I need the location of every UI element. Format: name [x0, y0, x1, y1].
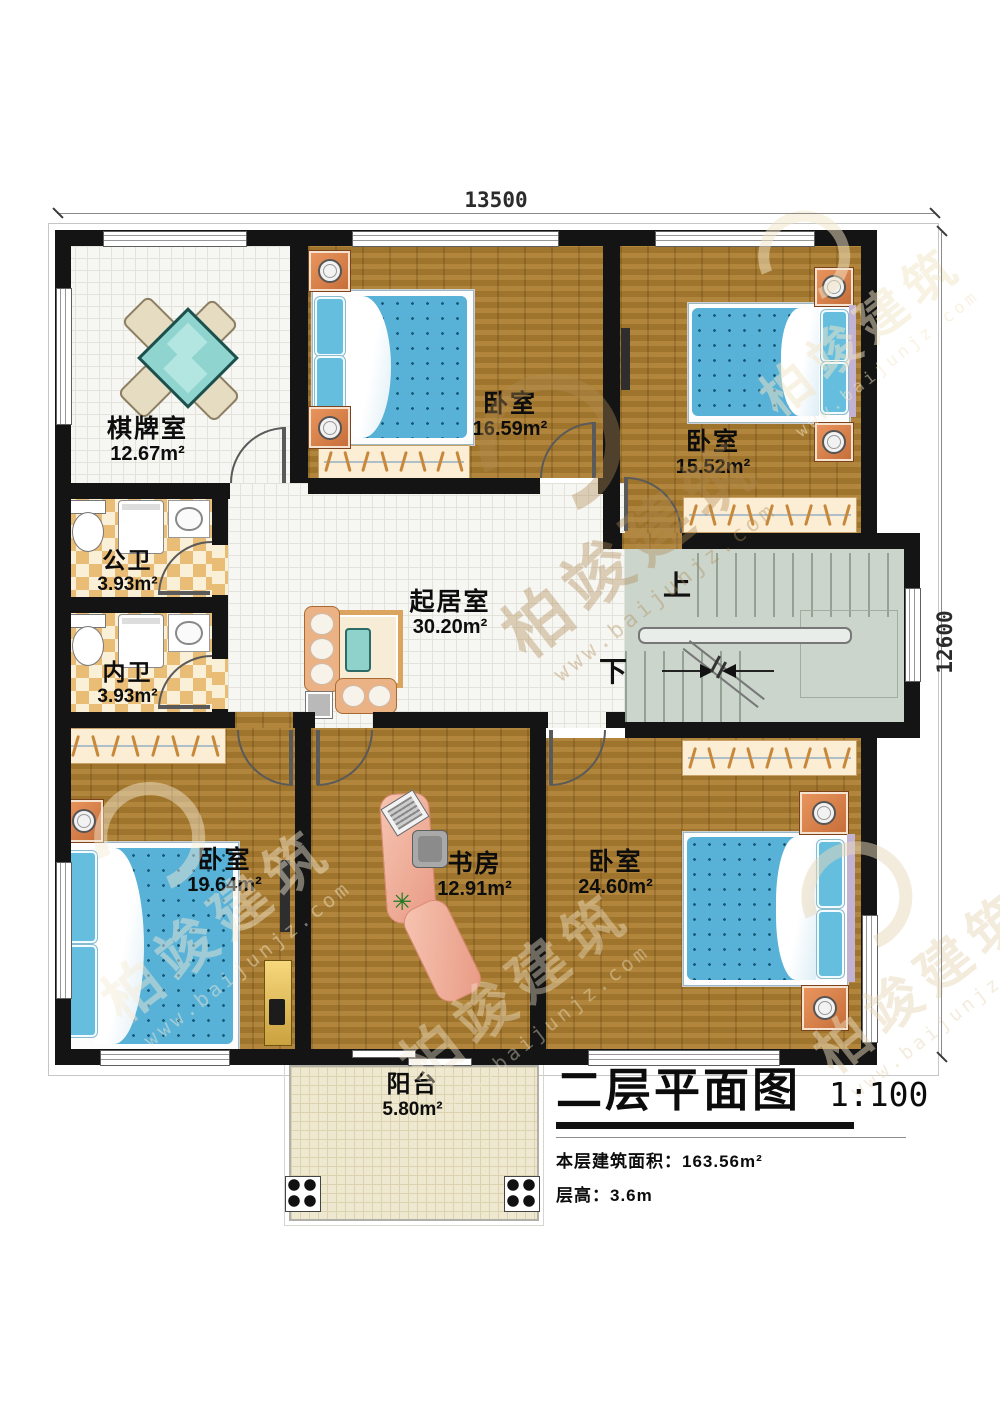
room-area: 15.52m² [653, 456, 773, 478]
bed-runner [847, 834, 855, 982]
window [862, 915, 878, 1043]
plant-icon: ✳ [392, 888, 412, 917]
nightstand-icon [800, 792, 848, 834]
door-leaf [289, 730, 293, 784]
room-label-balcony: 阳台 5.80m² [350, 1072, 475, 1120]
room-label-bedroom-top-mid: 卧室 16.59m² [440, 390, 580, 440]
stairs-down-label: 下 [599, 650, 627, 690]
window [655, 231, 815, 247]
door-gap [212, 659, 228, 709]
room-name: 卧室 [653, 428, 773, 456]
dimension-top: 13500 [57, 188, 935, 212]
floor-plan-page: { "watermark": { "brand": "柏竣建筑", "url":… [0, 0, 1000, 1416]
nightstand-icon [815, 423, 853, 461]
wall [295, 728, 311, 1049]
lamp-icon [318, 416, 342, 440]
dimension-right: 12600 [933, 597, 957, 687]
lamp-icon [318, 259, 342, 283]
room-area: 24.60m² [553, 876, 678, 898]
door-gap [235, 712, 293, 728]
stairs-landing [800, 610, 898, 698]
stairs-upper-flight [697, 553, 897, 617]
room-area: 12.67m² [85, 443, 210, 465]
room-area: 3.93m² [80, 686, 175, 707]
room-name: 卧室 [553, 848, 678, 876]
room-area: 5.80m² [350, 1099, 475, 1120]
window [56, 288, 72, 425]
sofa-cushion [368, 685, 391, 707]
room-name: 卧室 [162, 846, 287, 874]
nightstand-icon [815, 268, 853, 306]
sofa-cushion [310, 638, 334, 660]
room-name: 起居室 [385, 588, 515, 616]
wardrobe-icon [318, 445, 470, 479]
wall [308, 478, 540, 494]
stairs-handrail [638, 627, 852, 644]
door-leaf [282, 427, 286, 483]
door-leaf [316, 730, 320, 785]
wall [373, 712, 548, 728]
sliding-door [408, 1058, 472, 1066]
wall [293, 712, 315, 728]
room-label-bedroom-top-right: 卧室 15.52m² [653, 428, 773, 478]
wall [861, 230, 877, 549]
stairs-arrow-line [662, 670, 700, 672]
room-label-bedroom-bottom-right: 卧室 24.60m² [553, 848, 678, 898]
room-label-private-bath: 内卫 3.93m² [80, 660, 175, 707]
stairs-up-label: 上 [663, 564, 691, 604]
room-area: 30.20m² [385, 616, 515, 638]
room-name: 书房 [412, 850, 537, 878]
bed-blanket [776, 837, 816, 980]
pillow-icon [821, 362, 848, 414]
lamp-icon [72, 809, 96, 833]
wardrobe-icon [64, 728, 226, 764]
sofa-cushion [342, 685, 365, 707]
column-icon [285, 1176, 321, 1212]
nightstand-icon [802, 986, 848, 1030]
room-label-study: 书房 12.91m² [412, 850, 537, 900]
tv-icon [621, 328, 630, 390]
washing-machine-icon [118, 500, 164, 554]
room-name: 棋牌室 [85, 415, 210, 443]
title-underline [556, 1122, 854, 1129]
bed-blanket [781, 308, 819, 416]
window [103, 231, 247, 247]
door-leaf [592, 422, 596, 478]
room-label-public-bath: 公卫 3.93m² [80, 548, 175, 595]
room-area: 19.64m² [162, 874, 287, 896]
pillow-icon [315, 297, 345, 356]
room-area: 3.93m² [80, 574, 175, 595]
lamp-icon [813, 996, 837, 1020]
sink-icon [168, 614, 210, 652]
wall [55, 483, 230, 499]
room-area: 16.59m² [440, 418, 580, 440]
floor-area-text: 本层建筑面积：163.56m² [556, 1147, 976, 1172]
window [56, 862, 72, 999]
door-gap [622, 533, 682, 549]
room-label-bedroom-bottom-left: 卧室 19.64m² [162, 846, 287, 896]
room-area: 12.91m² [412, 878, 537, 900]
title-block: 二层平面图 1:100 本层建筑面积：163.56m² 层高：3.6m [556, 1054, 976, 1206]
toilet-icon [72, 512, 104, 552]
window [905, 588, 921, 682]
door-leaf [624, 477, 628, 531]
pillow-icon [817, 910, 844, 978]
plan-scale: 1:100 [829, 1075, 928, 1114]
nightstand-icon [309, 407, 350, 448]
pillow-icon [817, 840, 844, 908]
door-leaf [549, 730, 553, 785]
room-label-chess: 棋牌室 12.67m² [85, 415, 210, 465]
lamp-icon [822, 275, 846, 299]
floor-height-text: 层高：3.6m [556, 1181, 976, 1206]
title-divider [556, 1137, 906, 1138]
sofa-cushion [310, 613, 334, 635]
coffee-table-icon [345, 628, 371, 672]
sofa-cushion [310, 663, 334, 685]
bed-icon [683, 832, 848, 986]
lamp-icon [822, 430, 846, 454]
wall [55, 597, 212, 613]
door-gap [212, 545, 228, 595]
dimension-line [57, 213, 935, 214]
plan-title: 二层平面图 [556, 1054, 801, 1120]
wall [606, 712, 625, 728]
room-name: 公卫 [80, 548, 175, 574]
room-name: 阳台 [350, 1072, 475, 1099]
lamp-icon [812, 801, 836, 825]
sofa-icon [335, 678, 397, 714]
bed-runner [849, 305, 856, 417]
sliding-door [352, 1050, 416, 1058]
room-name: 卧室 [440, 390, 580, 418]
room-name: 内卫 [80, 660, 175, 686]
nightstand-icon [309, 251, 350, 291]
sink-icon [168, 500, 210, 538]
pillow-icon [821, 310, 848, 362]
wall [290, 230, 308, 483]
av-equipment-icon [269, 999, 285, 1025]
wardrobe-icon [682, 740, 857, 776]
window [352, 231, 559, 247]
window [100, 1050, 230, 1066]
wall [598, 478, 603, 494]
wall [603, 230, 620, 533]
wardrobe-icon [683, 497, 857, 533]
bed-icon [688, 303, 850, 423]
tv-cabinet-icon [264, 960, 292, 1046]
stairs-arrow-line [736, 670, 774, 672]
sofa-icon [304, 606, 340, 692]
column-icon [504, 1176, 540, 1212]
room-label-living: 起居室 30.20m² [385, 588, 515, 638]
